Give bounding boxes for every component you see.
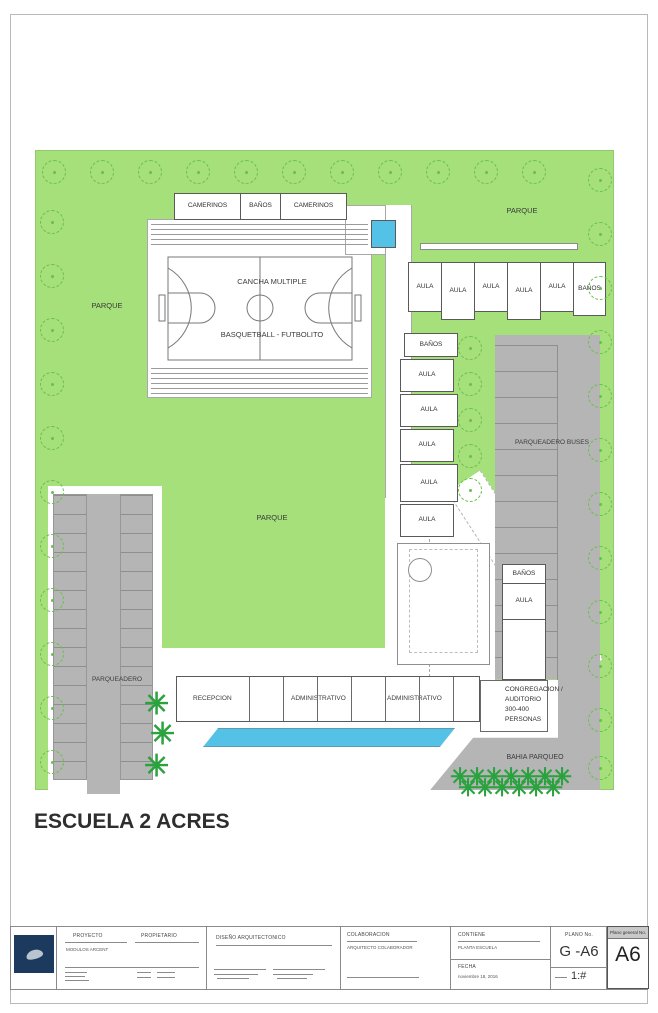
congregation-line: 300-400 bbox=[505, 705, 563, 715]
fecha-label: FECHA bbox=[458, 965, 476, 970]
plano-no-value: G -A6 bbox=[551, 943, 607, 960]
congregation-label: CONGREGACION / AUDITORIO 300-400 PERSONA… bbox=[505, 685, 563, 725]
tree-icon bbox=[458, 444, 482, 468]
plano-general-header: Plano general No. bbox=[608, 927, 648, 939]
palm-icon: ✳ bbox=[144, 752, 169, 782]
aula-row-2: AULA bbox=[441, 262, 475, 320]
proyecto-label: PROYECTO bbox=[73, 934, 103, 939]
tree-icon bbox=[426, 160, 450, 184]
bleachers-top bbox=[151, 224, 368, 248]
tree-icon bbox=[378, 160, 402, 184]
tree-icon bbox=[234, 160, 258, 184]
divider bbox=[347, 941, 417, 942]
tree-icon bbox=[458, 478, 482, 502]
propietario-label: PROPIETARIO bbox=[141, 934, 177, 939]
tree-icon bbox=[138, 160, 162, 184]
tree-icon bbox=[40, 750, 64, 774]
divider bbox=[216, 945, 332, 946]
admin-division-line bbox=[249, 677, 250, 721]
micro-text bbox=[555, 977, 567, 978]
signature-line bbox=[273, 969, 325, 970]
park-label-center: PARQUE bbox=[242, 514, 302, 522]
divider bbox=[458, 941, 540, 942]
aula-row-1: AULA bbox=[408, 262, 442, 312]
tree-icon bbox=[474, 160, 498, 184]
tree-icon bbox=[40, 318, 64, 342]
palm-icon: ✳ bbox=[543, 777, 563, 801]
tree-icon bbox=[458, 408, 482, 432]
divider bbox=[551, 967, 607, 968]
logo-cell bbox=[11, 927, 57, 989]
micro-text bbox=[157, 972, 175, 973]
admin-division-line bbox=[351, 677, 352, 721]
room-recepcion: RECEPCION bbox=[191, 696, 234, 703]
plano-general-value: A6 bbox=[608, 943, 648, 967]
logo-mark-icon bbox=[25, 948, 44, 961]
tree-icon bbox=[588, 756, 612, 780]
aula-col-2: AULA bbox=[400, 394, 458, 427]
tree-icon bbox=[40, 696, 64, 720]
proyecto-cell: PROYECTO PROPIETARIO MODULOS ARCENT bbox=[57, 927, 207, 989]
aula-col-4: AULA bbox=[400, 464, 458, 502]
tree-icon bbox=[458, 372, 482, 396]
divider bbox=[65, 967, 199, 968]
plan-sheet: CANCHA MULTIPLE BASQUETBALL - FUTBOLITO … bbox=[0, 0, 658, 1013]
parking-label: PARQUEADERO bbox=[77, 677, 157, 684]
room-administrativo-2: ADMINISTRATIVO bbox=[385, 696, 444, 703]
plano-no-label: PLANO No. bbox=[565, 933, 593, 938]
micro-text bbox=[65, 972, 87, 973]
tree-icon bbox=[588, 168, 612, 192]
room-camerinos-2: CAMERINOS bbox=[280, 193, 347, 220]
sidewalk-strip bbox=[420, 243, 578, 250]
tree-icon bbox=[588, 222, 612, 246]
tree-icon bbox=[588, 600, 612, 624]
micro-text bbox=[277, 978, 307, 979]
micro-text bbox=[217, 978, 249, 979]
logo bbox=[14, 935, 54, 973]
divider bbox=[65, 942, 127, 943]
signature-line bbox=[214, 969, 266, 970]
divider bbox=[135, 942, 199, 943]
diseno-cell: DISEÑO ARQUITECTONICO bbox=[207, 927, 341, 989]
colaboracion-cell: COLABORACION ARQUITECTO COLABORADOR bbox=[341, 927, 451, 989]
room-administrativo-1: ADMINISTRATIVO bbox=[289, 696, 348, 703]
tree-icon bbox=[40, 534, 64, 558]
multi-court bbox=[166, 254, 354, 362]
tree-icon bbox=[42, 160, 66, 184]
colaboracion-value: ARQUITECTO COLABORADOR bbox=[347, 946, 413, 951]
tree-icon bbox=[458, 336, 482, 360]
plano-general-cell: Plano general No. A6 bbox=[607, 926, 649, 989]
congregation-line: AUDITORIO bbox=[505, 695, 563, 705]
title-block: PROYECTO PROPIETARIO MODULOS ARCENT DISE… bbox=[10, 926, 648, 990]
tree-icon bbox=[90, 160, 114, 184]
tree-icon bbox=[588, 546, 612, 570]
fecha-value: noviembre 18, 2016 bbox=[458, 975, 498, 980]
plano-cell: PLANO No. G -A6 1:# bbox=[551, 927, 607, 989]
court-title: CANCHA MULTIPLE bbox=[187, 278, 357, 286]
aula-row-4: AULA bbox=[507, 262, 541, 320]
auditorium-circle bbox=[408, 558, 432, 582]
aula-col-banos: BAÑOS bbox=[404, 333, 458, 357]
aula-row-5: AULA bbox=[540, 262, 574, 312]
admin-division-line bbox=[283, 677, 284, 721]
micro-text bbox=[137, 977, 151, 978]
micro-text bbox=[273, 974, 313, 975]
parking-aisle bbox=[87, 494, 120, 794]
water-strip bbox=[203, 728, 455, 747]
room-camerinos-1: CAMERINOS bbox=[174, 193, 241, 220]
divider bbox=[451, 959, 551, 960]
proyecto-value: MODULOS ARCENT bbox=[66, 948, 108, 953]
micro-text bbox=[214, 974, 258, 975]
aula-col-3: AULA bbox=[400, 429, 454, 462]
escala-value: 1:# bbox=[571, 970, 586, 982]
park-label-left: PARQUE bbox=[77, 302, 137, 310]
tree-icon bbox=[186, 160, 210, 184]
contiene-label: CONTIENE bbox=[458, 933, 485, 938]
tree-icon bbox=[40, 372, 64, 396]
micro-text bbox=[65, 980, 89, 981]
tree-icon bbox=[40, 264, 64, 288]
road-label: BAHIA PARQUEO bbox=[490, 754, 580, 761]
aula-col-1: AULA bbox=[400, 359, 454, 392]
admin-division-line bbox=[453, 677, 454, 721]
congregation-line: PERSONAS bbox=[505, 715, 563, 725]
pool bbox=[371, 220, 396, 248]
micro-text bbox=[157, 977, 175, 978]
congregation-line: CONGREGACION / bbox=[505, 685, 563, 695]
sheet-title: ESCUELA 2 ACRES bbox=[34, 810, 230, 834]
tree-icon bbox=[330, 160, 354, 184]
tree-icon bbox=[588, 438, 612, 462]
court-subtitle: BASQUETBALL - FUTBOLITO bbox=[187, 331, 357, 339]
tree-icon bbox=[40, 480, 64, 504]
bleachers-bottom bbox=[151, 368, 368, 394]
palm-icon: ✳ bbox=[150, 720, 175, 750]
palm-icon: ✳ bbox=[144, 690, 169, 720]
admin-division-line bbox=[385, 677, 386, 721]
tree-icon bbox=[40, 588, 64, 612]
contiene-value: PLANTA ESCUELA bbox=[458, 946, 497, 951]
contiene-cell: CONTIENE PLANTA ESCUELA FECHA noviembre … bbox=[451, 927, 551, 989]
tree-icon bbox=[522, 160, 546, 184]
admin-row: RECEPCION ADMINISTRATIVO ADMINISTRATIVO bbox=[176, 676, 480, 722]
tree-icon bbox=[588, 654, 612, 678]
tree-icon bbox=[40, 210, 64, 234]
micro-text bbox=[137, 972, 151, 973]
tree-icon bbox=[282, 160, 306, 184]
micro-text bbox=[65, 976, 85, 977]
aud-banos: BAÑOS bbox=[502, 564, 546, 584]
colaboracion-label: COLABORACION bbox=[347, 933, 390, 938]
room-banos-top: BAÑOS bbox=[240, 193, 281, 220]
aula-col-5: AULA bbox=[400, 504, 454, 537]
parking-bays-right bbox=[120, 494, 153, 780]
signature-line bbox=[347, 977, 419, 978]
park-label-top: PARQUE bbox=[492, 207, 552, 215]
admin-division-line bbox=[419, 677, 420, 721]
tree-icon bbox=[588, 708, 612, 732]
tree-icon bbox=[40, 426, 64, 450]
tree-icon bbox=[588, 276, 612, 300]
admin-division-line bbox=[317, 677, 318, 721]
tree-icon bbox=[588, 330, 612, 354]
tree-icon bbox=[588, 384, 612, 408]
aud-aula: AULA bbox=[502, 583, 546, 620]
tree-icon bbox=[588, 492, 612, 516]
aula-row-3: AULA bbox=[474, 262, 508, 312]
diseno-label: DISEÑO ARQUITECTONICO bbox=[216, 936, 286, 941]
tree-icon bbox=[40, 642, 64, 666]
